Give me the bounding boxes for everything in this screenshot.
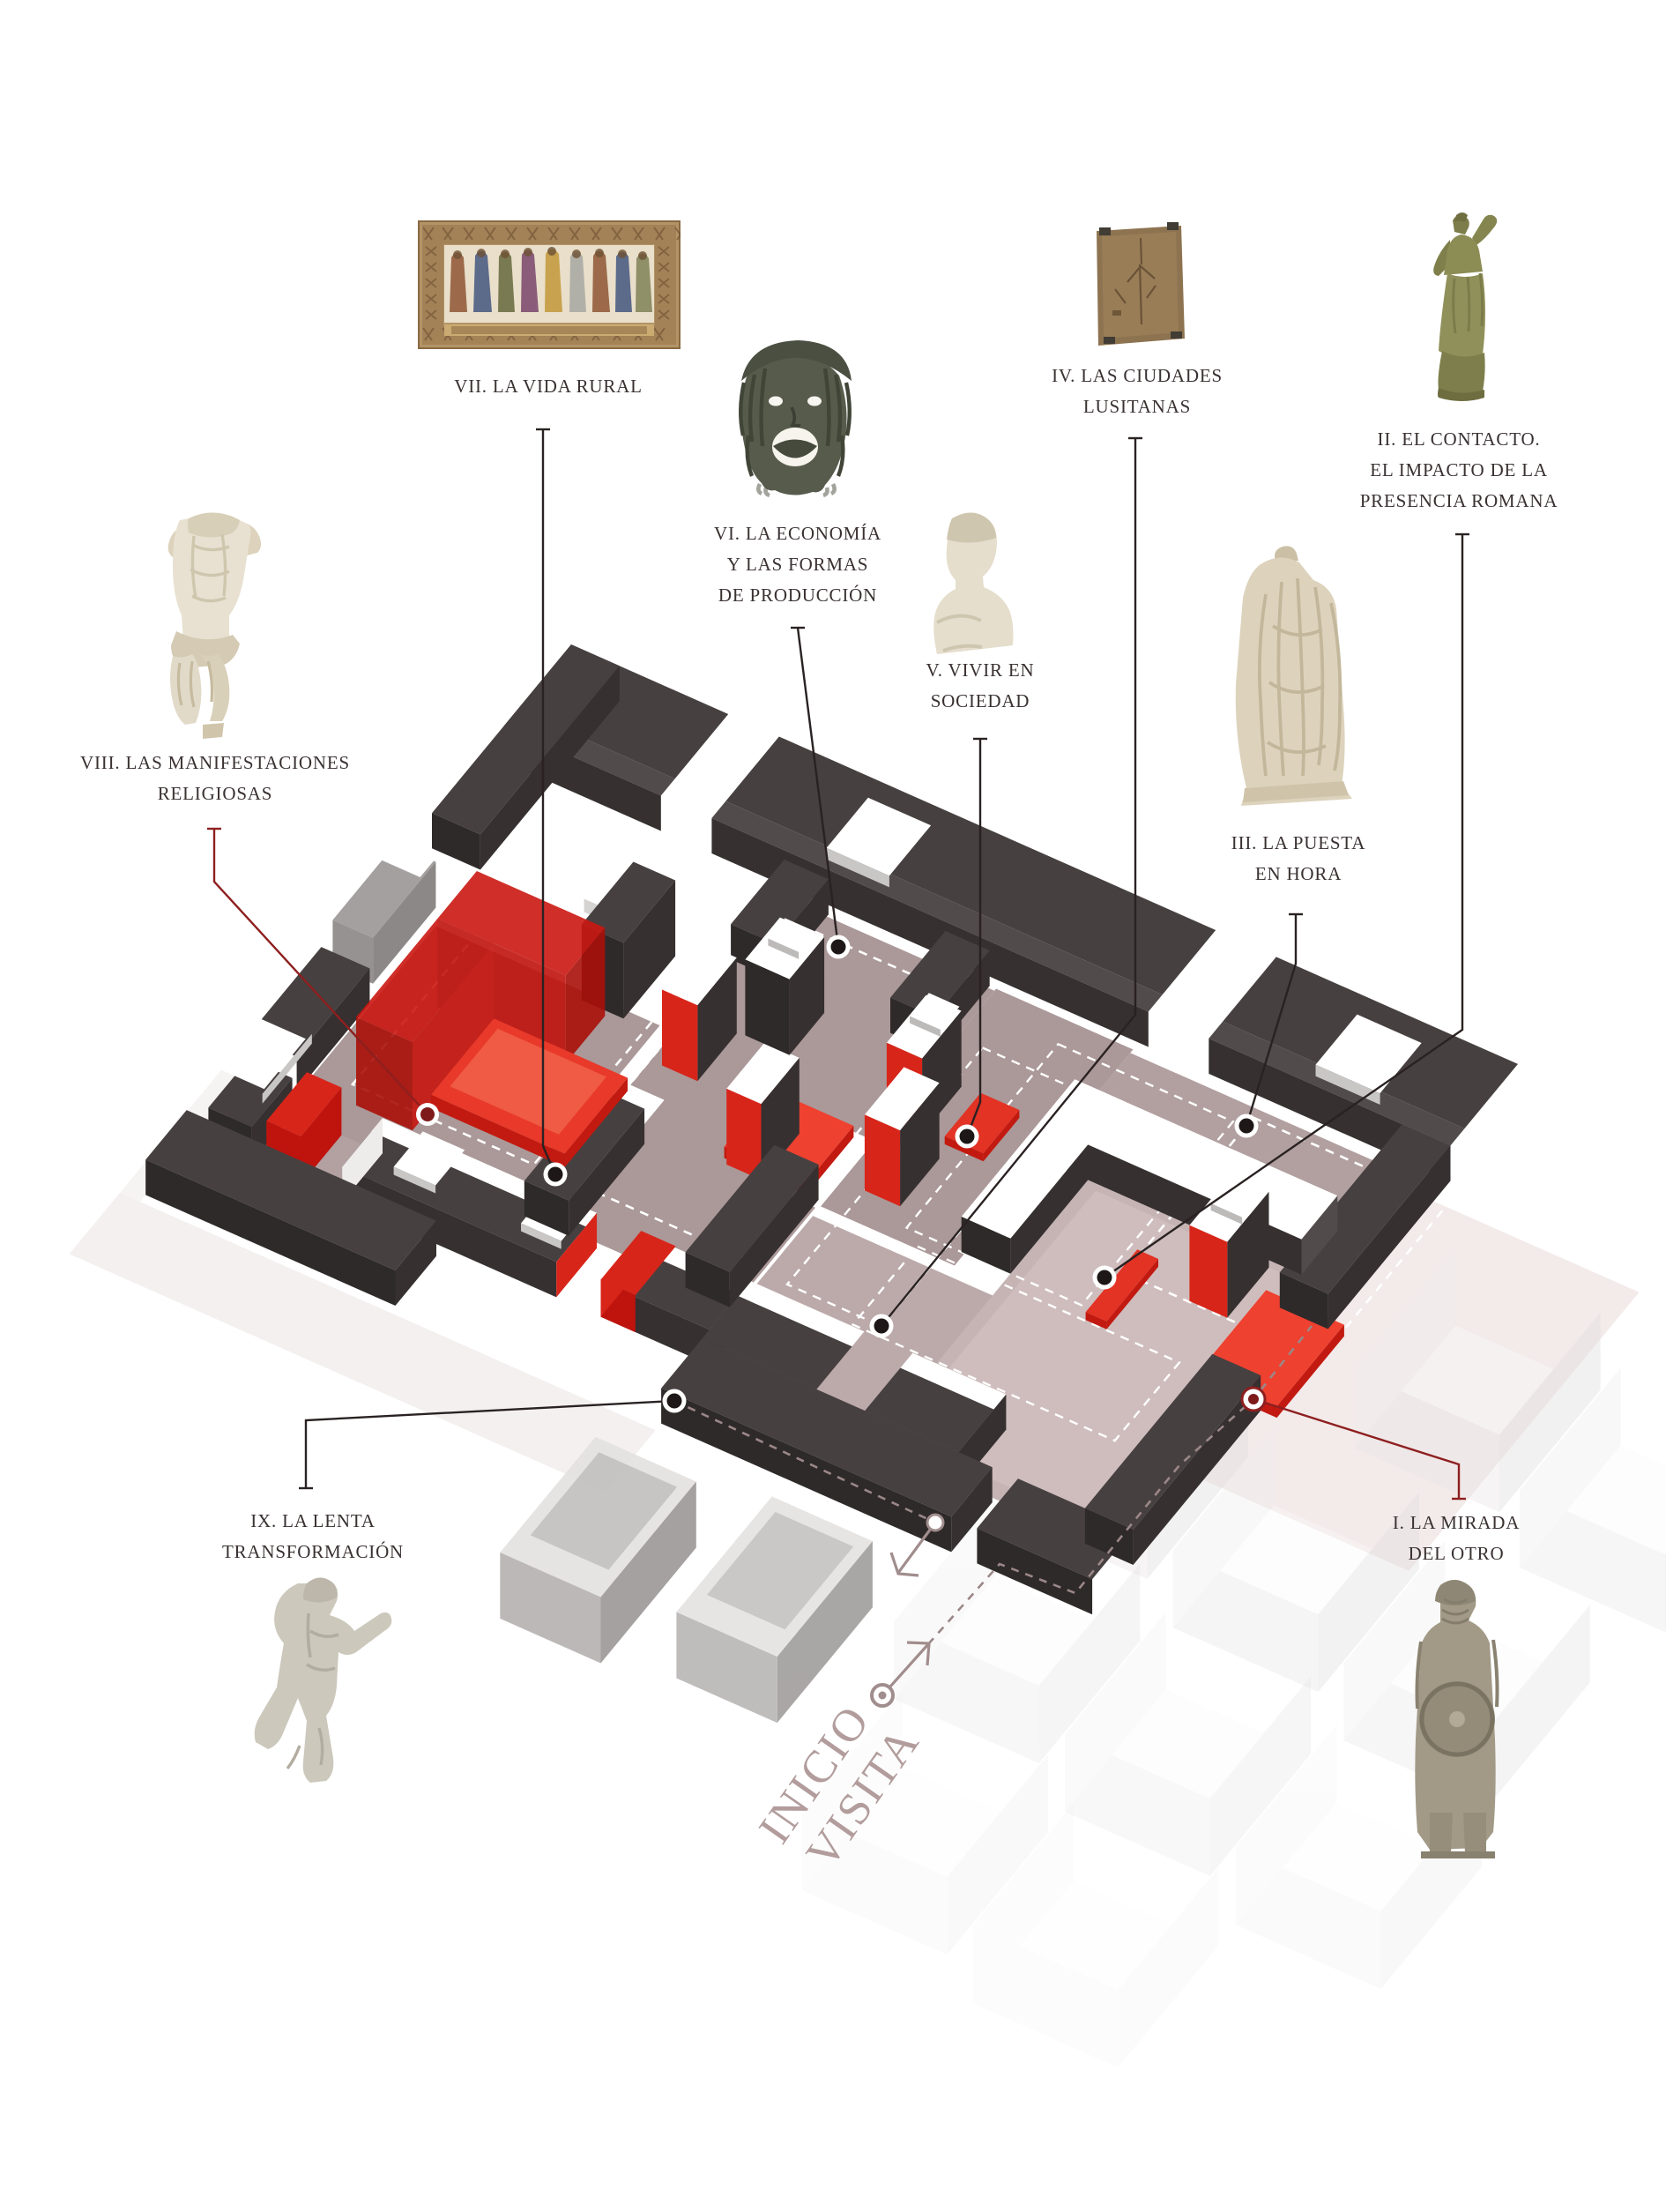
svg-text:VII. LA VIDA RURAL: VII. LA VIDA RURAL — [454, 376, 643, 397]
svg-text:II. EL CONTACTO.EL IMPACTO DE: II. EL CONTACTO.EL IMPACTO DE LAPRESENCI… — [1360, 428, 1558, 511]
svg-text:VI. LA ECONOMÍAY LAS FORMASDE: VI. LA ECONOMÍAY LAS FORMASDE PRODUCCIÓN — [714, 523, 881, 606]
